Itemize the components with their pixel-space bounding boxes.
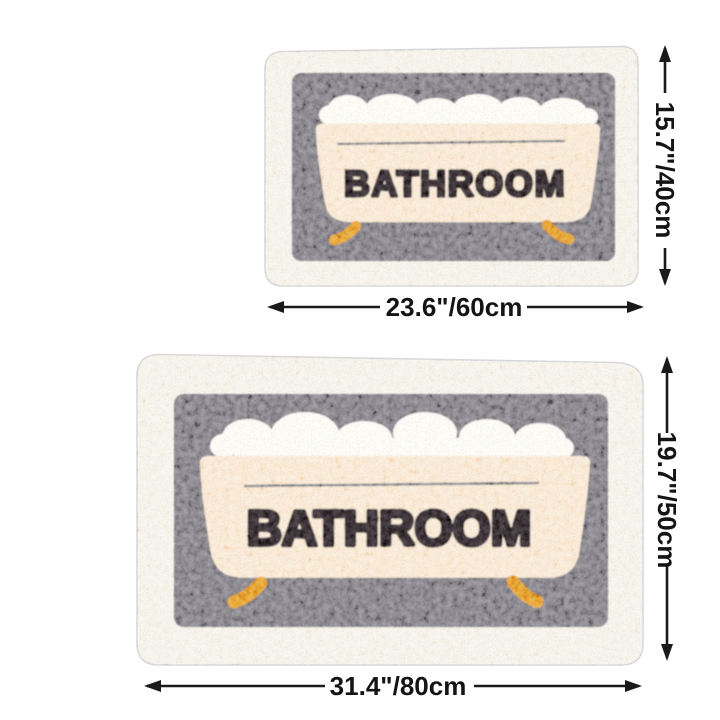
svg-text:19.7"/50cm: 19.7"/50cm <box>652 432 682 569</box>
svg-text:15.7"/40cm: 15.7"/40cm <box>650 102 680 239</box>
svg-text:23.6"/60cm: 23.6"/60cm <box>386 292 523 322</box>
svg-text:31.4"/80cm: 31.4"/80cm <box>330 671 467 701</box>
